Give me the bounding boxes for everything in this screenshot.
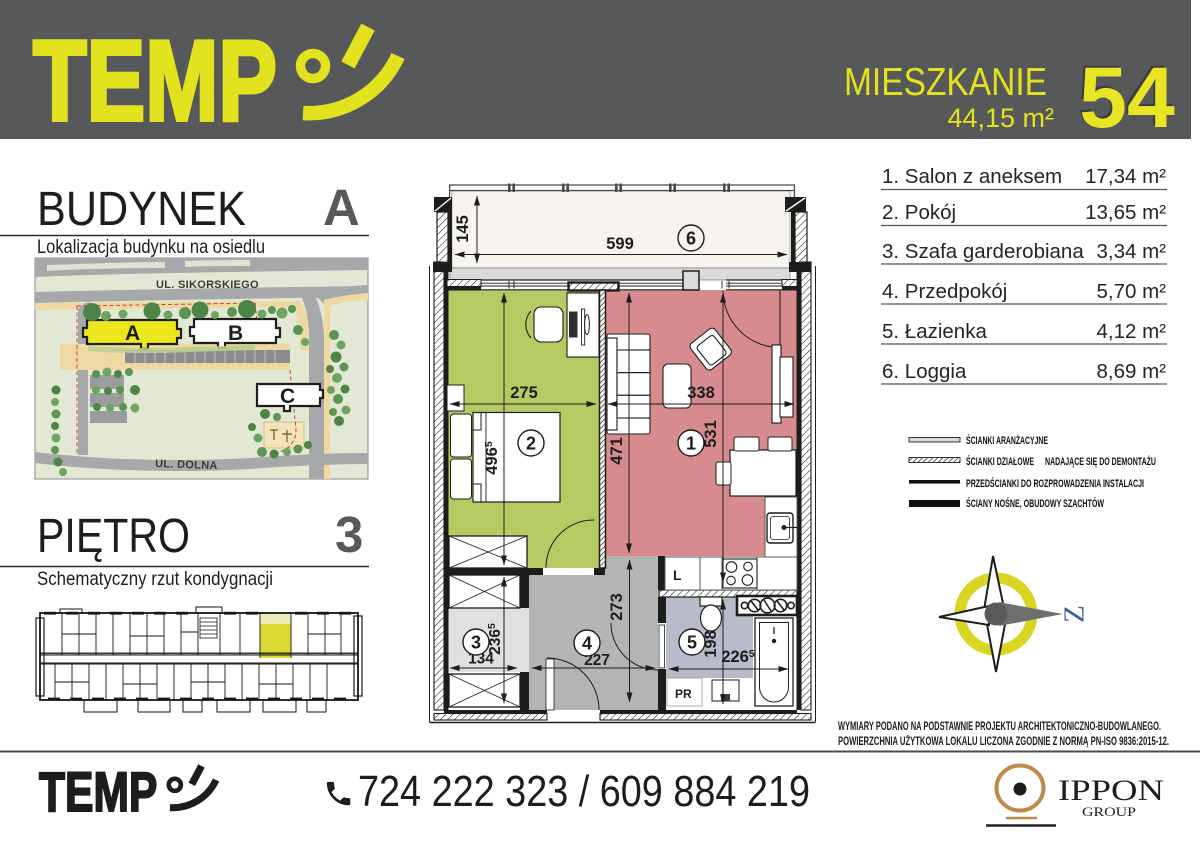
svg-text:ŚCIANKI DZIAŁOWE: ŚCIANKI DZIAŁOWE <box>966 455 1034 468</box>
svg-text:PR: PR <box>675 687 692 701</box>
svg-text:PRZEDŚCIANKI DO ROZPROWADZENIA: PRZEDŚCIANKI DO ROZPROWADZENIA INSTALACJ… <box>966 477 1144 490</box>
svg-text:Schematyczny rzut kondygnacji: Schematyczny rzut kondygnacji <box>37 568 273 590</box>
svg-text:UL. DOLNA: UL. DOLNA <box>155 458 218 472</box>
svg-text:1: 1 <box>686 434 696 454</box>
svg-text:UL. SIKORSKIEGO: UL. SIKORSKIEGO <box>156 279 259 291</box>
svg-text:4,12 m²: 4,12 m² <box>1097 320 1167 343</box>
svg-text:Lokalizacja budynku na osiedlu: Lokalizacja budynku na osiedlu <box>37 236 265 258</box>
svg-text:5,70 m²: 5,70 m² <box>1097 280 1167 303</box>
svg-text:NADAJĄCE SIĘ DO DEMONTAŻU: NADAJĄCE SIĘ DO DEMONTAŻU <box>1045 455 1156 468</box>
svg-text:3: 3 <box>335 506 363 563</box>
svg-text:TEMP: TEMP <box>39 761 157 823</box>
svg-text:724 222 323 / 609 884 219: 724 222 323 / 609 884 219 <box>358 767 810 816</box>
svg-text:6. Loggia: 6. Loggia <box>882 360 967 383</box>
svg-text:3: 3 <box>471 633 481 653</box>
svg-text:1. Salon z aneksem: 1. Salon z aneksem <box>882 165 1062 188</box>
svg-text:C: C <box>280 385 295 408</box>
svg-text:4: 4 <box>582 634 592 654</box>
svg-text:17,34 m²: 17,34 m² <box>1085 165 1166 188</box>
svg-text:POWIERZCHNIA UŻYTKOWA LOKALU L: POWIERZCHNIA UŻYTKOWA LOKALU LICZONA ZGO… <box>838 733 1169 748</box>
svg-text:2. Pokój: 2. Pokój <box>882 201 956 224</box>
svg-text:145: 145 <box>454 215 472 243</box>
svg-text:A: A <box>125 322 140 345</box>
svg-text:5: 5 <box>687 633 697 653</box>
svg-text:13,65 m²: 13,65 m² <box>1085 201 1166 224</box>
svg-text:L: L <box>673 567 682 583</box>
svg-text:54: 54 <box>1079 50 1175 146</box>
svg-text:273: 273 <box>608 593 626 621</box>
svg-text:ŚCIANY NOŚNE, OBUDOWY SZACHTÓW: ŚCIANY NOŚNE, OBUDOWY SZACHTÓW <box>966 497 1104 510</box>
svg-text:WYMIARY PODANO NA PODSTAWNIE P: WYMIARY PODANO NA PODSTAWNIE PROJEKTU AR… <box>838 719 1161 733</box>
svg-text:8,69 m²: 8,69 m² <box>1097 360 1167 383</box>
svg-text:471: 471 <box>608 437 626 465</box>
svg-text:6: 6 <box>686 229 696 249</box>
svg-text:ŚCIANKI ARANŻACYJNE: ŚCIANKI ARANŻACYJNE <box>966 434 1048 447</box>
svg-text:TEMP: TEMP <box>33 18 277 145</box>
svg-text:MIESZKANIE: MIESZKANIE <box>844 61 1047 104</box>
svg-text:44,15 m²: 44,15 m² <box>947 103 1054 133</box>
svg-text:BUDYNEK: BUDYNEK <box>37 183 246 236</box>
svg-text:A: A <box>323 179 360 236</box>
svg-text:Z: Z <box>1059 605 1091 623</box>
svg-text:GROUP: GROUP <box>1082 805 1136 819</box>
svg-text:IPPON: IPPON <box>1058 774 1164 807</box>
svg-text:338: 338 <box>687 384 715 402</box>
svg-text:275: 275 <box>510 384 538 402</box>
svg-text:2: 2 <box>526 434 536 454</box>
svg-text:3,34 m²: 3,34 m² <box>1097 240 1167 263</box>
svg-text:3. Szafa garderobiana: 3. Szafa garderobiana <box>882 240 1084 263</box>
svg-text:PIĘTRO: PIĘTRO <box>37 510 190 563</box>
svg-text:B: B <box>228 322 243 345</box>
svg-text:4. Przedpokój: 4. Przedpokój <box>882 280 1007 303</box>
svg-text:5. Łazienka: 5. Łazienka <box>882 320 987 343</box>
svg-text:531: 531 <box>702 420 720 448</box>
svg-text:599: 599 <box>606 235 634 253</box>
